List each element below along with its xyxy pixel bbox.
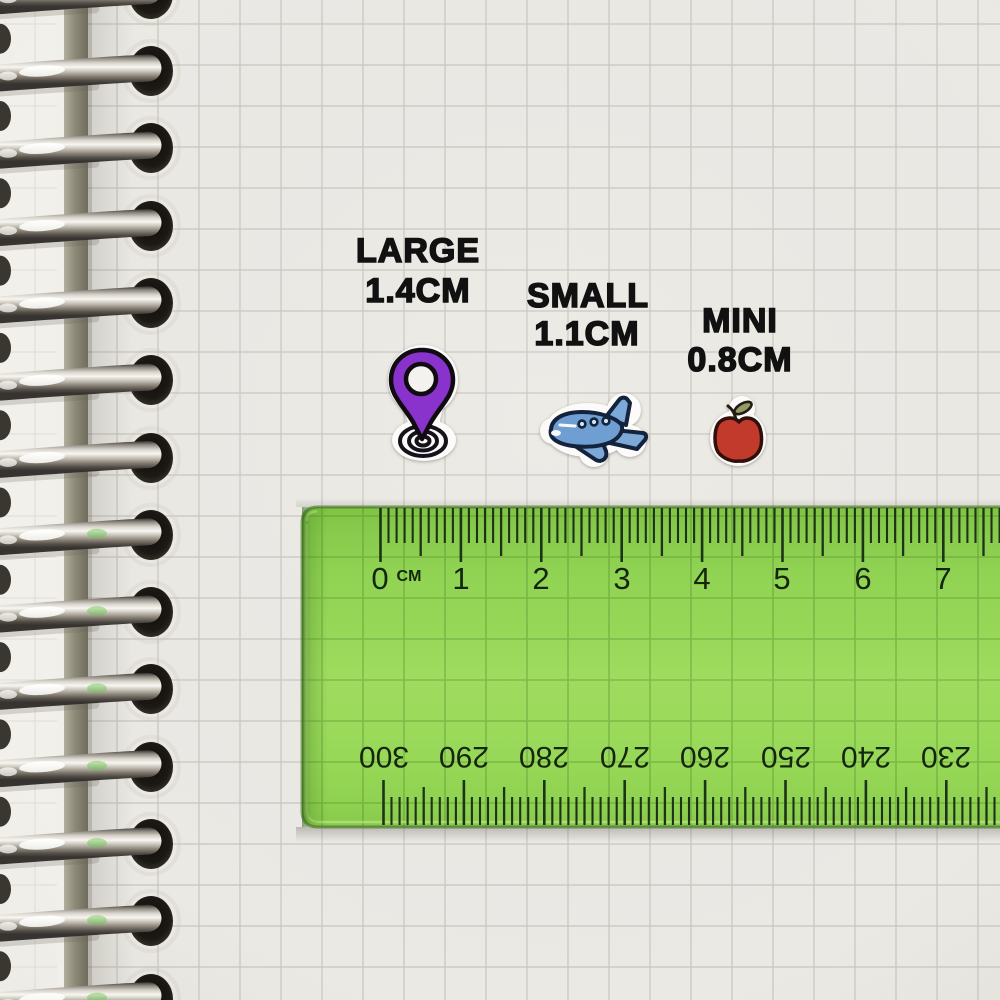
svg-text:1: 1 xyxy=(452,561,469,596)
svg-text:240: 240 xyxy=(841,740,891,773)
svg-text:LARGE: LARGE xyxy=(356,232,480,270)
svg-text:SMALL: SMALL xyxy=(527,277,649,315)
svg-text:230: 230 xyxy=(921,740,971,773)
svg-text:1.4CM: 1.4CM xyxy=(365,272,470,310)
svg-text:2: 2 xyxy=(532,561,549,596)
svg-text:0.8CM: 0.8CM xyxy=(687,341,792,379)
svg-text:4: 4 xyxy=(693,561,710,596)
svg-text:1.1CM: 1.1CM xyxy=(534,315,639,353)
svg-text:280: 280 xyxy=(519,740,569,773)
svg-text:6: 6 xyxy=(854,561,871,596)
svg-text:7: 7 xyxy=(934,561,951,596)
svg-text:270: 270 xyxy=(600,740,650,773)
svg-text:300: 300 xyxy=(359,740,409,773)
svg-text:MINI: MINI xyxy=(702,302,778,340)
svg-text:0: 0 xyxy=(371,561,388,596)
svg-text:CM: CM xyxy=(397,568,422,585)
svg-text:3: 3 xyxy=(613,561,630,596)
svg-text:250: 250 xyxy=(761,740,811,773)
svg-text:290: 290 xyxy=(439,740,489,773)
svg-text:5: 5 xyxy=(773,561,790,596)
svg-text:260: 260 xyxy=(680,740,730,773)
